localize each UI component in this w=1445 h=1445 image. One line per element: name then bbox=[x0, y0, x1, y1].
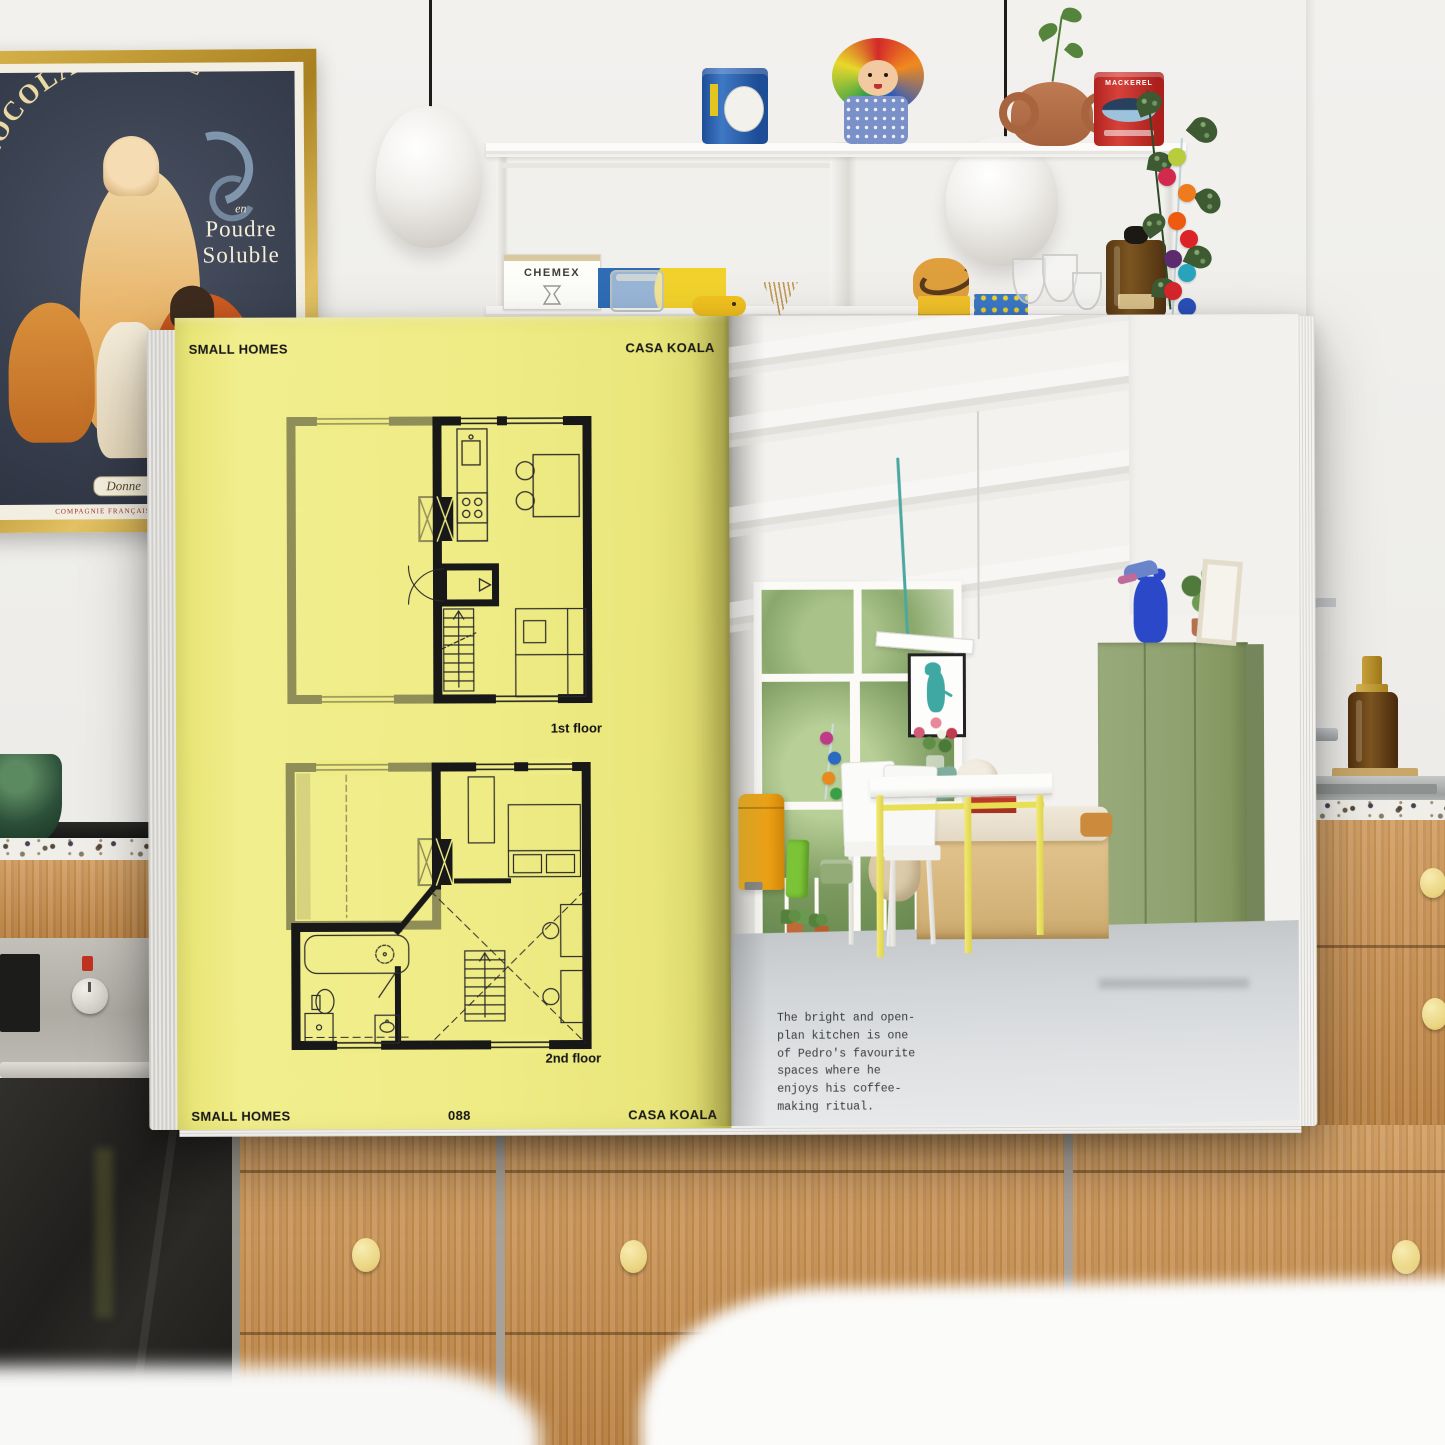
pom-3 bbox=[1178, 184, 1196, 202]
transom-mullion bbox=[854, 590, 862, 674]
blue-tin-accent bbox=[710, 84, 718, 116]
bin-lid-line bbox=[738, 807, 784, 809]
blue-figurine bbox=[1133, 576, 1167, 642]
pom-5 bbox=[1180, 230, 1198, 248]
plan-label-1st-floor: 1st floor bbox=[551, 720, 602, 735]
footer-title: SMALL HOMES bbox=[191, 1109, 290, 1124]
doll-dress bbox=[844, 96, 908, 144]
doll-eye-left bbox=[868, 73, 872, 77]
book-left-page: SMALL HOMES CASA KOALA bbox=[175, 316, 732, 1130]
sink bbox=[1300, 776, 1445, 802]
plant-leaves-1 bbox=[781, 908, 809, 924]
book-page-stack-right bbox=[1297, 316, 1318, 1126]
mackerel-tin-label: MACKEREL bbox=[1094, 80, 1164, 87]
pom-2 bbox=[1158, 168, 1176, 186]
book-right-page: The bright and open- plan kitchen is one… bbox=[729, 314, 1302, 1126]
counter-right-drawers bbox=[1300, 820, 1445, 1130]
green-bowl bbox=[0, 754, 62, 846]
amber-jar-highlight bbox=[1114, 246, 1120, 306]
bench-plinth bbox=[916, 835, 1108, 940]
page-number: 088 bbox=[448, 1108, 471, 1123]
left-page-footer: SMALL HOMES 088 CASA KOALA bbox=[191, 1107, 717, 1124]
foreground-chair-blur bbox=[638, 1277, 1445, 1445]
counter-left-terrazzo bbox=[0, 838, 153, 860]
glass-jar bbox=[610, 270, 664, 312]
counter-right-terrazzo bbox=[1300, 800, 1445, 820]
bottle-highlight bbox=[1356, 700, 1362, 762]
cabinet-knob-1 bbox=[352, 1238, 380, 1272]
wine-glass-1 bbox=[1012, 258, 1046, 304]
shelf-rail bbox=[500, 163, 830, 168]
table-leg-1 bbox=[876, 795, 884, 957]
white-chair-2-seat bbox=[884, 845, 940, 860]
footer-chapter: CASA KOALA bbox=[628, 1107, 717, 1122]
window-pom-2 bbox=[828, 752, 841, 765]
kitchen-scene: CHOCOLAT·IDÉAL en Poudre Soluble Donne bbox=[0, 0, 1445, 1445]
window-pom-1 bbox=[820, 732, 833, 745]
sprig-leaf-3 bbox=[1064, 40, 1086, 62]
poster-figure-head bbox=[103, 136, 159, 196]
drawer-knob-right-1 bbox=[1420, 868, 1445, 898]
chemex-box-label: CHEMEX bbox=[504, 267, 600, 279]
pom-4 bbox=[1168, 212, 1186, 230]
table-top bbox=[870, 773, 1052, 799]
bin-pedal bbox=[745, 882, 763, 890]
cat-print-head bbox=[925, 662, 941, 675]
wine-glass-3 bbox=[1072, 272, 1102, 310]
shelf-post-middle bbox=[830, 142, 856, 318]
poster-figure-child-left bbox=[8, 302, 95, 443]
drawer-seam-right bbox=[1300, 945, 1445, 948]
floor-plan-1st bbox=[281, 402, 598, 717]
window-pom-4 bbox=[830, 788, 842, 800]
flower-bouquet bbox=[908, 713, 964, 761]
pom-1 bbox=[1168, 148, 1186, 166]
floor-plan-2nd bbox=[280, 748, 597, 1063]
yellow-toy-eye bbox=[732, 302, 736, 306]
green-basket bbox=[820, 860, 852, 884]
oven-glass-reflection bbox=[95, 1148, 113, 1318]
counter-left-drawer bbox=[0, 860, 153, 938]
running-head-right: CASA KOALA bbox=[625, 340, 714, 355]
wall-corner-shadow bbox=[1306, 0, 1316, 320]
mackerel-tin-text-bar bbox=[1104, 130, 1154, 136]
drawer-knob-right-2 bbox=[1422, 998, 1445, 1030]
chemex-carafe-icon bbox=[539, 285, 565, 305]
doll-mouth bbox=[874, 84, 882, 89]
plant-leaves-2 bbox=[809, 912, 835, 928]
poster-subtitle: en Poudre Soluble bbox=[202, 201, 280, 269]
sprig-leaf-2 bbox=[1060, 5, 1084, 25]
table-leg-2 bbox=[964, 797, 972, 953]
cabinet-knob-2 bbox=[620, 1240, 647, 1273]
green-bag bbox=[786, 839, 810, 898]
open-book: SMALL HOMES CASA KOALA bbox=[147, 312, 1320, 1138]
blue-tin-label bbox=[724, 86, 764, 132]
window-pom-3 bbox=[822, 772, 835, 785]
chemex-box: CHEMEX bbox=[503, 254, 601, 310]
orange-cushion bbox=[1080, 813, 1112, 837]
left-page-header: SMALL HOMES CASA KOALA bbox=[189, 340, 715, 357]
photo-caption: The bright and open- plan kitchen is one… bbox=[777, 1009, 927, 1116]
oven-knob bbox=[72, 978, 108, 1014]
plan-label-2nd-floor: 2nd floor bbox=[546, 1050, 602, 1065]
oven-red-indicator bbox=[82, 956, 93, 971]
pom-6 bbox=[1164, 250, 1182, 268]
leaning-frame bbox=[1196, 559, 1243, 646]
doll-eye-right bbox=[884, 73, 888, 77]
blue-tin-can bbox=[702, 68, 768, 144]
sink-basin bbox=[1308, 784, 1437, 794]
poster-banner: Donne bbox=[93, 476, 154, 496]
pom-8 bbox=[1164, 282, 1182, 300]
oven-display bbox=[0, 954, 40, 1032]
lamp-wire bbox=[977, 411, 980, 639]
cabinet-knob-3 bbox=[1392, 1240, 1420, 1274]
vine-leaf-4 bbox=[1193, 184, 1225, 218]
vine-leaf-2 bbox=[1186, 112, 1223, 148]
pendant-lamp-left bbox=[376, 106, 482, 248]
shelf-board-top bbox=[486, 143, 1186, 157]
tiger-vase-swirl bbox=[916, 260, 969, 301]
chemex-box-top-stripe bbox=[504, 255, 600, 261]
table-leg-3 bbox=[1036, 795, 1043, 935]
terracotta-vase-handle-left bbox=[999, 92, 1039, 134]
amber-jar-label bbox=[1118, 294, 1154, 309]
pom-7 bbox=[1178, 264, 1196, 282]
oven-knob-marker bbox=[88, 982, 91, 992]
oven-panel bbox=[0, 938, 153, 1064]
yellow-pedal-bin bbox=[738, 794, 784, 890]
cabinet-floor-shadow bbox=[1099, 978, 1249, 989]
amber-soap-bottle bbox=[1348, 692, 1398, 774]
chair-2-leg-front bbox=[890, 860, 895, 946]
running-head-left: SMALL HOMES bbox=[189, 342, 288, 357]
glass-jar-lid bbox=[616, 274, 658, 281]
terracotta-vase bbox=[1011, 82, 1093, 146]
oven-handle bbox=[0, 1062, 153, 1078]
doll-face bbox=[858, 60, 898, 96]
pendant-cord-left bbox=[429, 0, 432, 112]
cabinet-seam-top bbox=[240, 1170, 1445, 1173]
foreground-table-blur bbox=[0, 1366, 540, 1445]
